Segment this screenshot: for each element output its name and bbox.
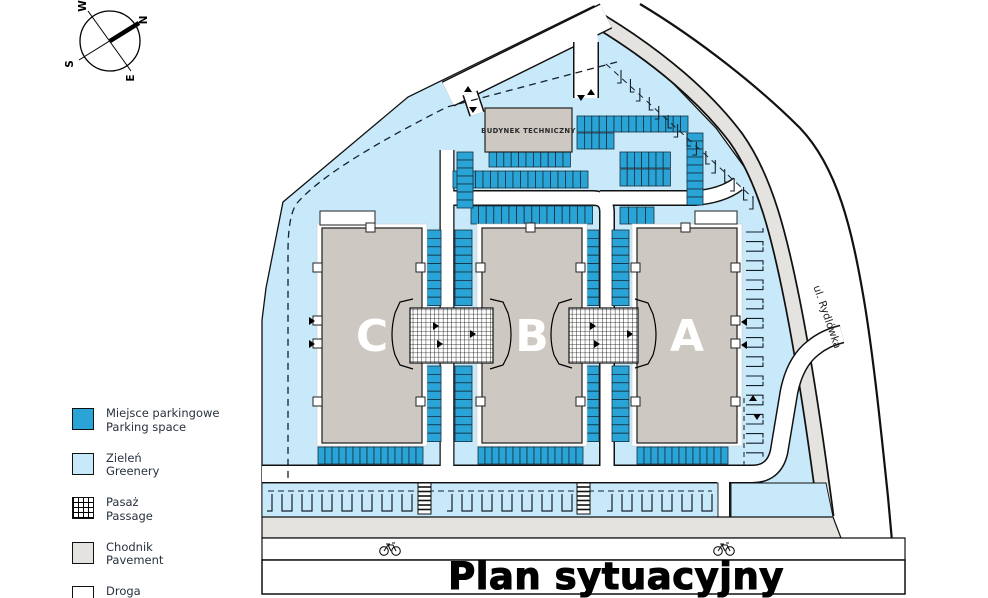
greenery-swatch-icon	[72, 453, 94, 475]
legend: Miejsce parkingowe Parking space Zieleń …	[72, 407, 262, 598]
legend-item-pavement: Chodnik Pavement	[72, 541, 262, 568]
compass-e: E	[125, 74, 137, 81]
compass-rose-icon: N W S E	[64, 0, 150, 82]
legend-label-en: Parking space	[106, 420, 186, 434]
passage-swatch-icon	[72, 497, 94, 519]
legend-label-pl: Zieleń	[106, 451, 142, 465]
pavement-band	[262, 517, 841, 538]
canopy-A	[695, 211, 737, 224]
bottom-greenery-strip	[262, 483, 833, 517]
parking-swatch-icon	[72, 408, 94, 430]
street-swatch-icon	[72, 586, 94, 598]
technical-building-label: BUDYNEK TECHNICZNY	[481, 127, 576, 135]
legend-label-en: Greenery	[106, 464, 159, 478]
compass-w: W	[77, 0, 89, 12]
site-plan-page: BUDYNEK TECHNICZNY C B A ul. Rydlówka	[0, 0, 988, 598]
passage-C-B	[410, 308, 493, 363]
legend-item-street: Droga Street	[72, 585, 262, 598]
technical-building: BUDYNEK TECHNICZNY	[481, 108, 576, 152]
building-C-label: C	[356, 311, 388, 362]
building-A-label: A	[670, 311, 704, 362]
legend-item-passage: Pasaż Passage	[72, 496, 262, 523]
legend-label-pl: Droga	[106, 584, 141, 598]
buildings: C B A	[317, 211, 742, 446]
pavement-swatch-icon	[72, 542, 94, 564]
legend-item-greenery: Zieleń Greenery	[72, 452, 262, 479]
legend-item-parking: Miejsce parkingowe Parking space	[72, 407, 262, 434]
legend-label-en: Pavement	[106, 553, 163, 567]
legend-label-en: Passage	[106, 509, 153, 523]
legend-label-pl: Pasaż	[106, 495, 139, 509]
page-title: Plan sytuacyjny	[448, 555, 784, 598]
legend-label-pl: Miejsce parkingowe	[106, 406, 219, 420]
compass-s: S	[64, 60, 76, 68]
building-B-label: B	[515, 311, 549, 362]
legend-label-pl: Chodnik	[106, 540, 153, 554]
compass-n: N	[138, 16, 150, 25]
